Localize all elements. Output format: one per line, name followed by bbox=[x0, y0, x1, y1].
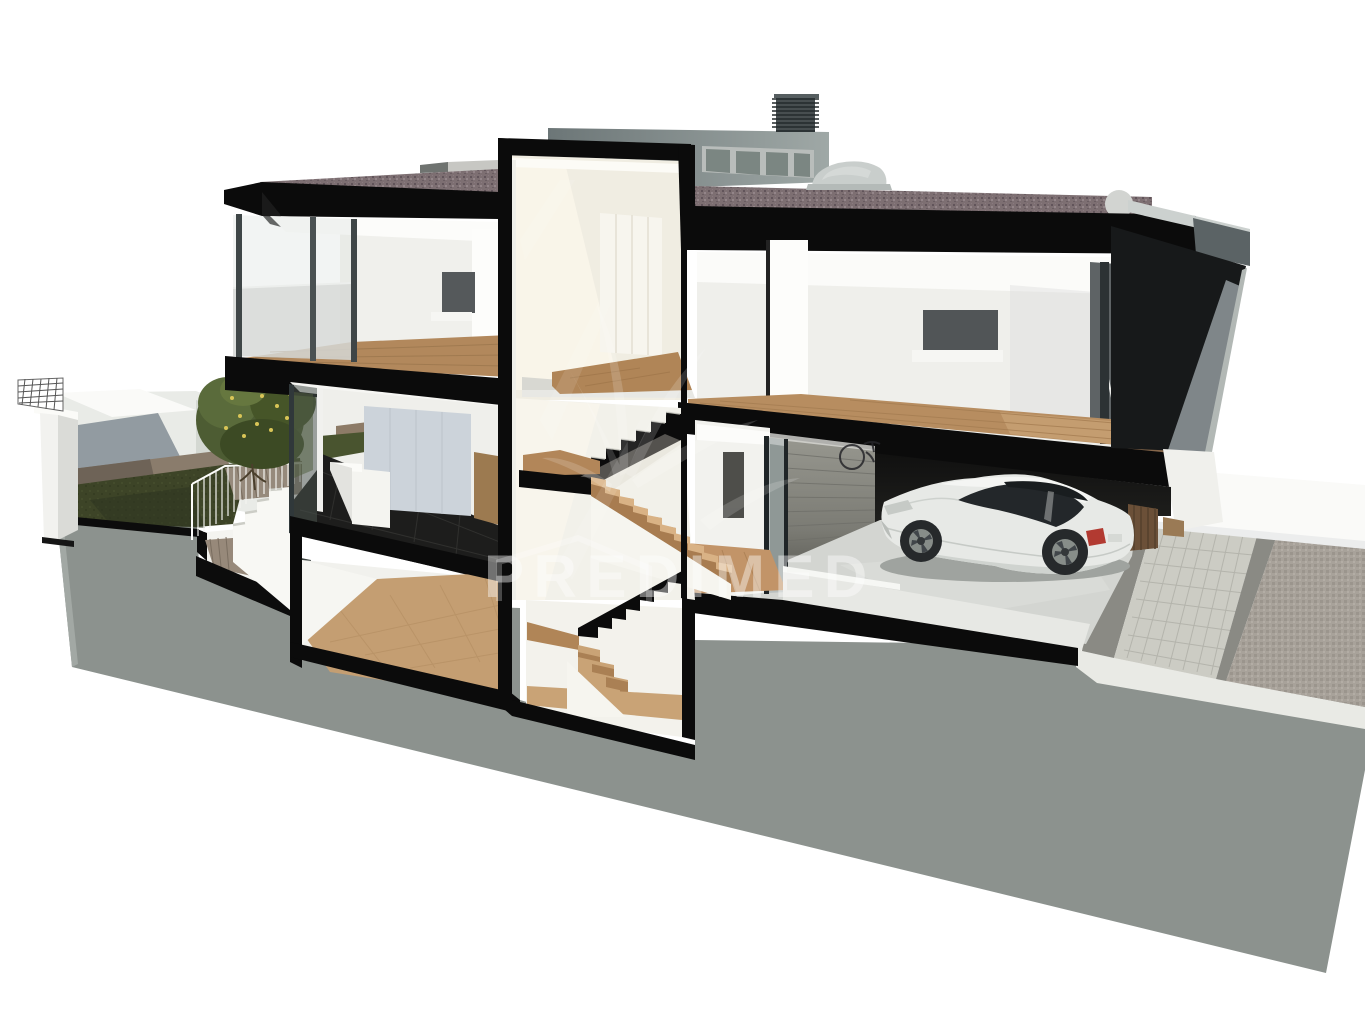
svg-text:PREDIMED: PREDIMED bbox=[484, 543, 877, 610]
